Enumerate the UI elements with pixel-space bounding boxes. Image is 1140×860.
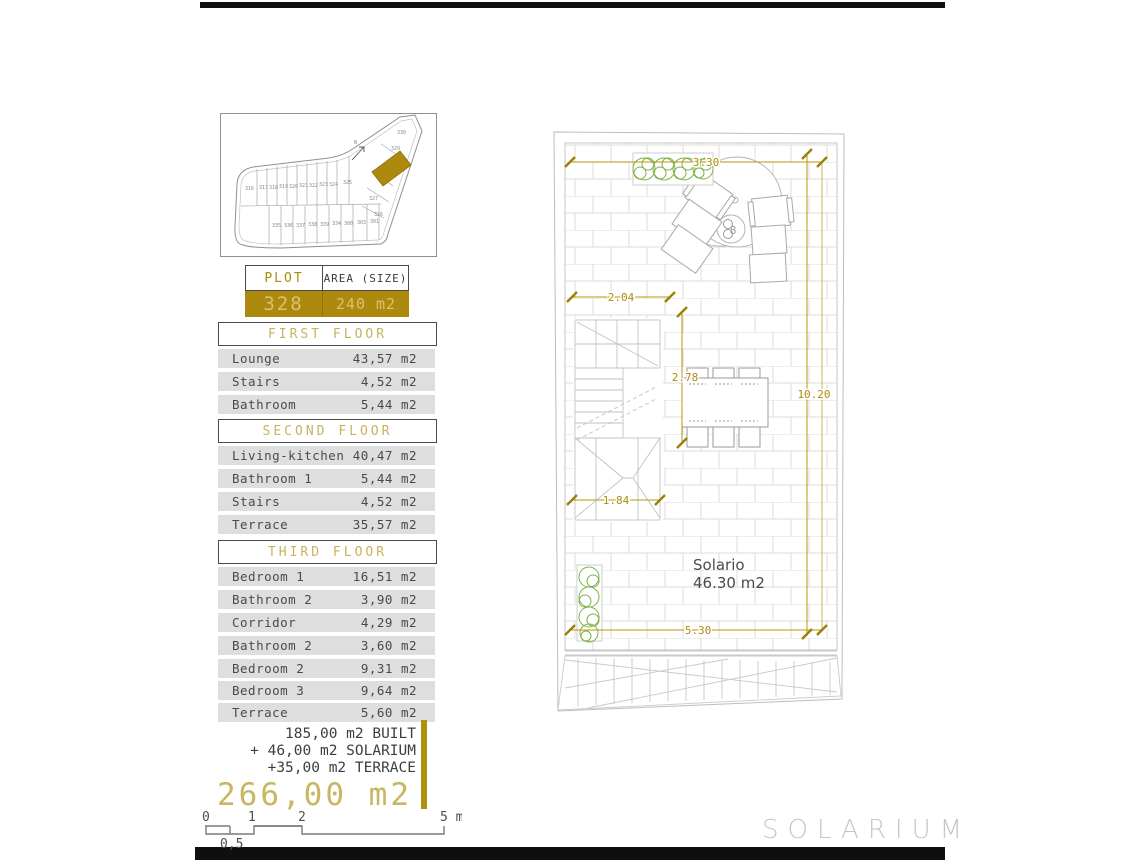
svg-text:319: 319 [279, 184, 288, 190]
plot-area-value: 240 m2 [323, 291, 409, 317]
top-border-bar [200, 2, 945, 8]
site-map: N 316 317 318 319 320 321 322 323 324 32… [220, 113, 437, 257]
scale-bar-line [206, 825, 444, 834]
svg-text:330: 330 [397, 130, 406, 136]
summary-solarium: + 46,00 m2 SOLARIUM [150, 743, 416, 760]
scale-end-label: 5 m [440, 810, 462, 825]
area-size-header: AREA (SIZE) [323, 266, 408, 290]
svg-text:324: 324 [329, 182, 338, 188]
spa-number-label: 8 [730, 224, 737, 237]
table-row: Bathroom 23,60 m2 [218, 636, 435, 655]
dim-upper-left-label: 2.04 [608, 291, 635, 304]
room-area-label: 46.30 m2 [693, 574, 765, 592]
svg-text:337: 337 [296, 223, 305, 229]
third-floor-header: THIRD FLOOR [218, 540, 437, 564]
table-row: Bathroom 15,44 m2 [218, 469, 435, 488]
svg-text:336: 336 [284, 223, 293, 229]
second-floor-header: SECOND FLOOR [218, 419, 437, 443]
svg-text:322: 322 [309, 183, 318, 189]
svg-text:320: 320 [289, 184, 298, 190]
table-row: Bedroom 29,31 m2 [218, 659, 435, 678]
gold-accent-bar [421, 720, 427, 809]
svg-text:325: 325 [343, 180, 352, 186]
plot-header: PLOT [246, 266, 323, 290]
dim-right-vertical-label: 10.20 [797, 388, 830, 401]
svg-text:335: 335 [272, 223, 281, 229]
dim-top-label: 3.30 [693, 156, 720, 169]
dining-table [682, 378, 768, 427]
table-row: Bedroom 116,51 m2 [218, 567, 435, 586]
table-row: Stairs4,52 m2 [218, 492, 435, 511]
svg-text:318: 318 [269, 185, 278, 191]
room-name-label: Solario [693, 556, 745, 574]
table-row: Lounge43,57 m2 [218, 349, 435, 368]
plot-number: 328 [245, 291, 323, 317]
table-row: Living-kitchen40,47 m2 [218, 446, 435, 465]
svg-text:300: 300 [344, 221, 353, 227]
first-floor-header: FIRST FLOOR [218, 322, 437, 346]
table-row: Stairs4,52 m2 [218, 372, 435, 391]
svg-text:303: 303 [357, 220, 366, 226]
dim-bottom-label: 5.30 [685, 624, 712, 637]
svg-text:316: 316 [245, 186, 254, 192]
svg-text:329: 329 [391, 146, 400, 152]
svg-text:323: 323 [319, 182, 328, 188]
scale-tick-2: 2 [298, 810, 306, 825]
dim-center-vertical-label: 2.78 [672, 371, 699, 384]
north-label: N [354, 140, 357, 146]
summary-terrace: +35,00 m2 TERRACE [150, 760, 416, 777]
svg-text:327: 327 [369, 196, 378, 202]
floor-plan: Solario 46.30 m2 8 [548, 128, 848, 713]
chair [739, 425, 760, 447]
summary-built: 185,00 m2 BUILT [150, 726, 416, 743]
area-summary: 185,00 m2 BUILT + 46,00 m2 SOLARIUM +35,… [150, 726, 416, 777]
svg-text:339: 339 [320, 222, 329, 228]
stairwell [573, 318, 663, 522]
plan-sheet: N 316 317 318 319 320 321 322 323 324 32… [0, 0, 1140, 860]
chair [687, 425, 708, 447]
scale-bar: 0 1 2 5 m 0,5 [192, 808, 462, 852]
svg-text:334: 334 [332, 221, 341, 227]
table-row: Bedroom 39,64 m2 [218, 681, 435, 700]
scale-tick-1: 1 [248, 810, 256, 825]
table-row: Terrace35,57 m2 [218, 515, 435, 534]
table-row: Bathroom5,44 m2 [218, 395, 435, 414]
scale-tick-0: 0 [202, 810, 210, 825]
dim-lower-left-label: 1.84 [603, 494, 630, 507]
svg-text:317: 317 [259, 185, 268, 191]
table-row: Terrace5,60 m2 [218, 703, 435, 722]
svg-text:338: 338 [308, 222, 317, 228]
site-map-drawing: N 316 317 318 319 320 321 322 323 324 32… [221, 114, 436, 256]
svg-text:321: 321 [299, 183, 308, 189]
plot-area-table: PLOT AREA (SIZE) 328 240 m2 [245, 265, 409, 317]
svg-text:326: 326 [374, 212, 383, 218]
table-row: Corridor4,29 m2 [218, 613, 435, 632]
chair [713, 425, 734, 447]
table-row: Bathroom 23,90 m2 [218, 590, 435, 609]
sheet-title: SOLARIUM [762, 815, 922, 845]
svg-text:301: 301 [370, 219, 379, 225]
scale-sub-label: 0,5 [220, 837, 243, 852]
